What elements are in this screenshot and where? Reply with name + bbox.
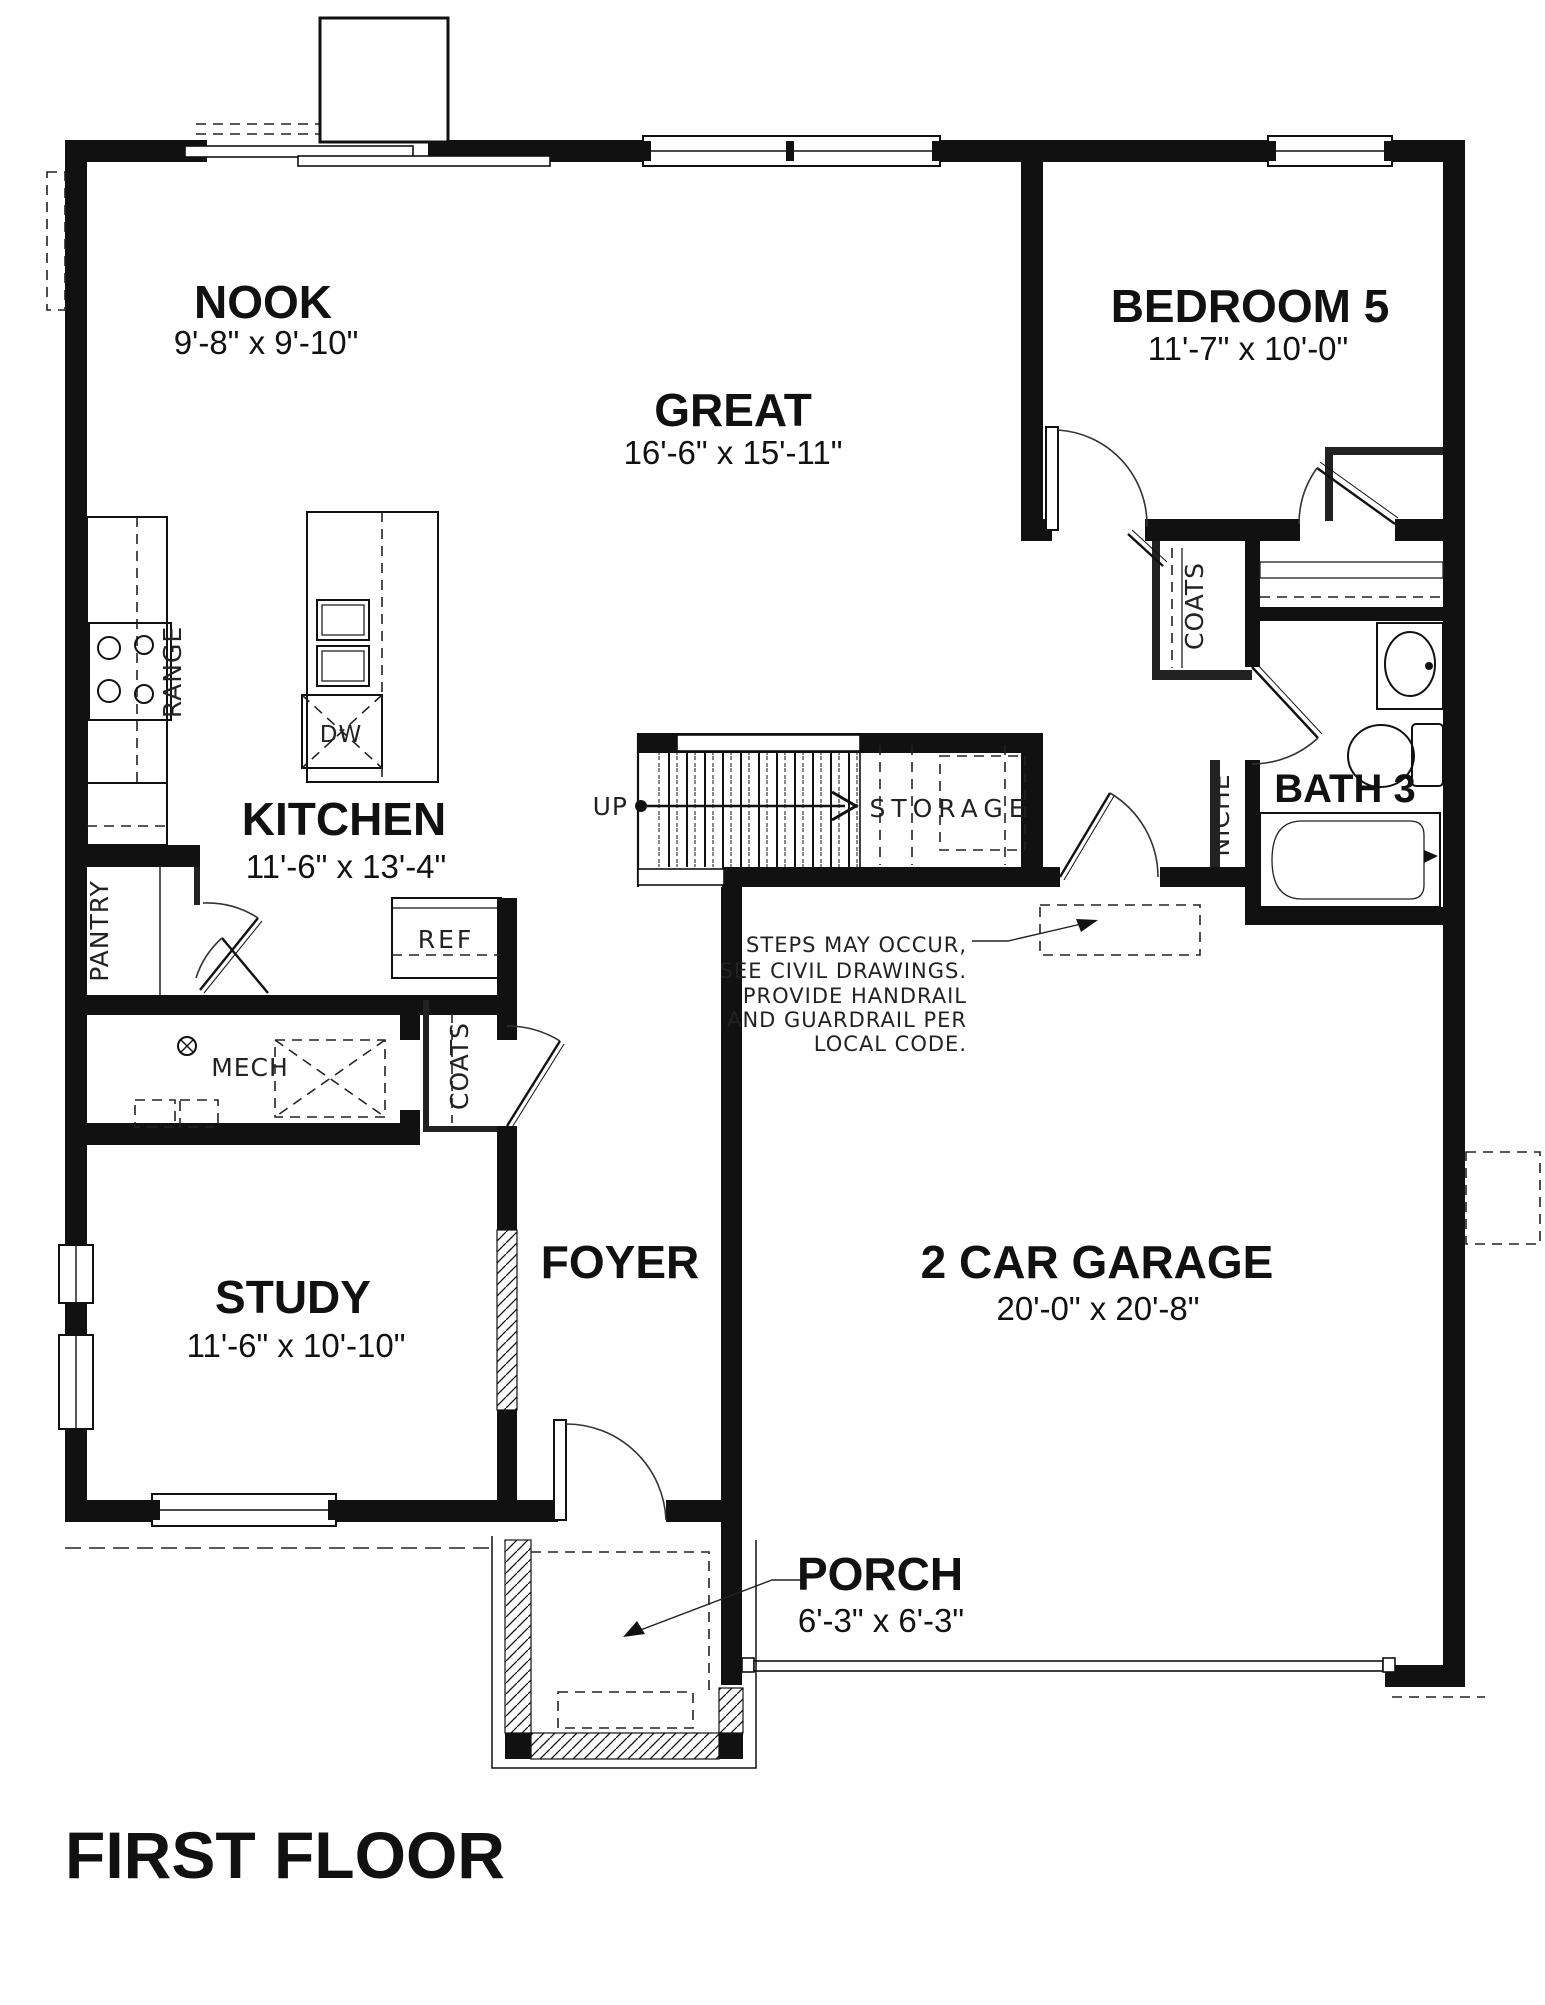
great-label: GREAT xyxy=(654,384,812,436)
up-label: UP xyxy=(593,792,628,821)
porch-post xyxy=(719,1733,743,1759)
porch-label: PORCH xyxy=(797,1548,963,1600)
porch-post xyxy=(505,1733,531,1759)
mech-label: MECH xyxy=(211,1053,289,1082)
study-label: STUDY xyxy=(215,1271,371,1323)
sheet-title: FIRST FLOOR xyxy=(65,1818,505,1892)
kitchen-dims: 11'-6" x 13'-4" xyxy=(246,848,447,885)
garage-label: 2 CAR GARAGE xyxy=(921,1236,1274,1288)
note-line-3: PROVIDE HANDRAIL xyxy=(743,984,967,1008)
note-line-1: STEPS MAY OCCUR, xyxy=(746,933,967,957)
study-bottom-window xyxy=(152,1494,336,1526)
storage-label: STORAGE xyxy=(869,794,1030,823)
hall-coats-label: COATS xyxy=(1180,562,1209,650)
note-line-5: LOCAL CODE. xyxy=(814,1032,967,1056)
note-line-4: AND GUARDRAIL PER xyxy=(727,1008,967,1032)
kitchen-label: KITCHEN xyxy=(242,793,446,845)
porch-dims: 6'-3" x 6'-3" xyxy=(798,1602,964,1639)
bedroom5-label: BEDROOM 5 xyxy=(1111,280,1390,332)
study-left-window-1 xyxy=(59,1245,93,1303)
study-cased-opening xyxy=(497,1230,517,1410)
range-label: RANGE xyxy=(158,626,187,718)
ref-label: REF xyxy=(418,925,475,954)
stair-treads xyxy=(656,753,860,867)
niche-label: NICHE xyxy=(1206,773,1235,856)
dw-label: DW xyxy=(320,722,362,748)
note-line-2: SEE CIVIL DRAWINGS. xyxy=(720,959,967,983)
stair-railing xyxy=(677,735,860,751)
pantry-label: PANTRY xyxy=(85,880,114,982)
bedroom5-window xyxy=(1268,136,1392,166)
bedroom5-dims: 11'-7" x 10'-0" xyxy=(1148,330,1349,367)
nook-label: NOOK xyxy=(194,276,332,328)
stairs xyxy=(635,733,860,887)
foyer-coats-label: COATS xyxy=(445,1022,474,1110)
nook-exterior-dashed xyxy=(47,172,65,310)
chimney-bumpout xyxy=(320,18,448,142)
study-left-window-2 xyxy=(59,1335,93,1429)
great-window xyxy=(643,136,940,166)
nook-dims: 9'-8" x 9'-10" xyxy=(174,324,359,361)
stair-bottom-edge xyxy=(638,869,724,885)
foyer-label: FOYER xyxy=(541,1236,699,1288)
garage-dims: 20'-0" x 20'-8" xyxy=(997,1290,1200,1327)
bath3-label: BATH 3 xyxy=(1274,767,1415,811)
study-dims: 11'-6" x 10'-10" xyxy=(187,1327,406,1364)
great-dims: 16'-6" x 15'-11" xyxy=(624,434,843,471)
floor-plan: NOOK 9'-8" x 9'-10" GREAT 16'-6" x 15'-1… xyxy=(0,0,1545,2005)
